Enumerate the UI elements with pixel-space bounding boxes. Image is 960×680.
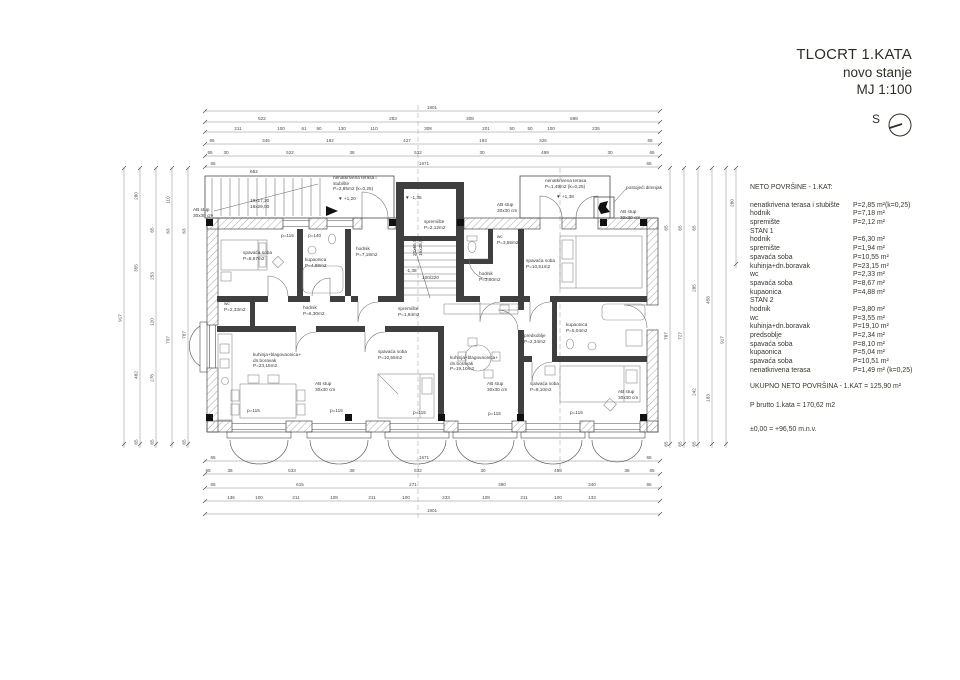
area-row-value: P=1,94 m² [853,245,885,254]
area-row-value: P=8,10 m² [853,341,885,350]
dimension-label: 65 [150,439,155,444]
area-row-label: hodnik [750,210,770,217]
areas-total: UKUPNO NETO POVRŠINA - 1.KAT = 125,90 m² [750,383,945,392]
area-row: spavaća sobaP=8,10 m² [750,341,945,350]
dimension-label: 65 [134,439,139,444]
dimension-label: 280 [134,192,139,200]
area-row: kuhinja+dn.boravakP=23,15 m² [750,263,945,272]
area-row: kuhinja+dn.boravakP=19,10 m² [750,323,945,332]
dimension-label: 787 [182,331,187,339]
dimension-label: 120 [150,318,155,326]
room-label: spremišteP=1,94m2 [398,306,420,317]
drawing-subtitle: novo stanje [796,65,912,80]
dimension-label: 183 [706,394,711,402]
dimension-label: 727 [678,332,683,340]
area-row-label: spremište [750,219,780,226]
area-row: spavaća sobaP=10,55 m² [750,254,945,263]
dimension-label: 522 [258,116,266,121]
area-row-label: spremište [750,245,780,252]
dimension-label: 63 [166,228,171,233]
room-label: spavaća sobaP=10,51m2 [526,258,555,269]
area-row: nenatkrivena terasa i stubišteP=2,85 m²(… [750,202,945,211]
room-label: spremišteP=2,12m2 [424,219,446,230]
dimension-label: 63 [182,228,187,233]
dimension-label: 737 [166,336,171,344]
area-row-label: kuhinja+dn.boravak [750,323,810,330]
area-row: hodnikP=7,18 m² [750,210,945,219]
room-label: hodnikP=7,18m2 [356,246,378,257]
dimension-label: 65 [647,138,652,143]
room-label: spavaća sobaP=8,10m2 [530,381,559,392]
plan-annotation: 20x16,5016x28,00 [412,237,423,256]
dimension-label: 65 [182,439,187,444]
plan-annotation: p=115 [281,233,294,239]
drawing-sheet: spavaća sobaP=8,67m2kupaonicaP=4,88m2hod… [0,0,960,680]
plan-annotation: 652 [250,169,258,175]
dimension-label: 482 [134,371,139,379]
area-row-label: wc [750,271,758,278]
plan-annotation: p=115 [488,411,501,417]
dimension-label: 308 [424,126,432,131]
area-row: predsobljeP=2,34 m² [750,332,945,341]
dimension-label: 50 [316,126,321,131]
dimension-label: 65 [210,455,215,460]
room-label: kuhinja+blagovaonica+dn.boravakP=23,15m2 [253,352,301,369]
room-label: kupaonicaP=4,88m2 [305,257,327,268]
dimension-label: 340 [588,482,596,487]
dimension-label: 38 [624,468,629,473]
dimension-label: 100 [255,495,263,500]
areas-brutto: P brutto 1.kata = 170,62 m2 [750,402,945,411]
dimension-label: 211 [520,495,527,500]
dimension-label: 787 [664,332,669,340]
area-row: STAN 1 [750,228,945,237]
dimension-label: 211 [368,495,375,500]
dimension-label: 65 [205,468,210,473]
dimension-label: 201 [482,126,490,131]
dimension-label: 30 [479,150,484,155]
dimension-label: 1671 [419,161,429,166]
dimension-label: 65 [210,482,215,487]
dimension-label: 1801 [427,508,437,513]
area-row-value: P=2,33 m² [853,271,885,280]
dimension-label: 50 [509,126,514,131]
areas-panel: NETO POVRŠINE - 1.KAT: nenatkrivena tera… [750,184,945,435]
dimension-label: 355 [134,264,139,272]
dimension-label: 61 [301,126,306,131]
area-row-label: kupaonica [750,349,781,356]
dimension-label: 345 [262,138,270,143]
dimension-label: 235 [592,126,600,131]
dimension-label: 108 [330,495,338,500]
dimension-label: 65 [207,150,212,155]
area-row-label: spavaća soba [750,358,793,365]
dimension-label: 533 [288,468,296,473]
area-row-value: P=1,49 m² (k=0,25) [853,367,912,376]
area-row-value: P=2,12 m² [853,219,885,228]
dimension-label: 65 [649,150,654,155]
room-label: hodnikP=6,30m2 [303,305,325,316]
dimension-label: 65 [150,227,155,232]
dimension-label: 50 [527,126,532,131]
plan-annotation: postojeći dimnjak [626,185,662,191]
plan-annotation: p=115 [330,408,343,414]
area-row-value: P=23,15 m² [853,263,889,272]
dimension-label: 100 [277,126,285,131]
dimension-label: 192 [326,138,334,143]
dimension-label: 38 [227,468,232,473]
plan-annotation: ▼ +1,38 [556,194,574,200]
area-row-value: P=19,10 m² [853,323,889,332]
room-label: spavaća sobaP=10,55m2 [378,349,407,360]
north-compass: S [866,103,918,143]
dimension-label: 698 [570,116,578,121]
dimension-label: 108 [482,495,490,500]
area-row-label: spavaća soba [750,341,793,348]
plan-annotation: ▼ -1,38 [400,268,417,274]
room-label: kuhinja+blagovaonica+dn.boravakP=19,10m2 [450,355,498,372]
area-row-label: hodnik [750,236,770,243]
area-row-label: STAN 2 [750,297,774,304]
plan-annotation: nenatkrivena terasa istubišteP=2,85m2 (k… [333,175,377,192]
dimension-label: 499 [541,150,549,155]
dimension-label: 458 [706,296,711,304]
area-row: kupaonicaP=4,88 m² [750,289,945,298]
dimension-label: 65 [646,482,651,487]
dimension-label: 110 [166,196,171,203]
dimension-label: 390 [498,482,506,487]
area-row-label: kuhinja+dn.boravak [750,263,810,270]
dimension-label: 65 [649,468,654,473]
dimension-label: 136 [227,495,235,500]
room-label: predsobljeP=2,34m2 [524,333,546,344]
room-label: wcP=2,33m2 [224,301,246,312]
dimension-label: 917 [720,336,725,344]
dimension-label: 65 [646,161,651,166]
plan-annotation: ▼ -1,35 [405,195,422,201]
dimension-label: 278 [150,374,155,382]
dimension-label: 65 [646,455,651,460]
dimension-label: 271 [409,482,417,487]
dimension-label: 280 [730,199,735,207]
room-label: wcP=3,55m2 [497,234,519,245]
area-row: spremišteP=2,12 m² [750,219,945,228]
area-row-value: P=8,67 m² [853,280,885,289]
dimension-label: 211 [234,126,241,131]
dimension-label: 65 [210,161,215,166]
areas-rows: nenatkrivena terasa i stubišteP=2,85 m²(… [750,202,945,376]
dimension-label: 100 [547,126,555,131]
area-row-label: predsoblje [750,332,782,339]
dimension-label: 65 [209,138,214,143]
areas-heading: NETO POVRŠINE - 1.KAT: [750,184,945,193]
datum-level: ±0,00 = +96,50 m.n.v. [750,426,945,435]
dimension-label: 65 [692,225,697,230]
dimension-label: 65 [664,225,669,230]
plan-annotation: AB stup30x30 cm [497,202,517,213]
area-row: nenatkrivena terasaP=1,49 m² (k=0,25) [750,367,945,376]
dimension-label: 110 [370,126,377,131]
dimension-label: 38 [349,150,354,155]
dimension-label: 1801 [427,105,437,110]
dimension-label: 38 [349,468,354,473]
dimension-label: 283 [389,116,397,121]
area-row-value: P=4,88 m² [853,289,885,298]
area-row-label: hodnik [750,306,770,313]
dimension-label: 242 [692,388,697,396]
area-row-label: wc [750,315,758,322]
dimension-label: 65 [678,441,683,446]
dimension-label: 498 [554,468,562,473]
area-row-label: spavaća soba [750,254,793,261]
dimension-label: 211 [292,495,299,500]
dimension-label: 183 [479,138,487,143]
area-row-value: P=10,55 m² [853,254,889,263]
drawing-title: TLOCRT 1.KATA [796,46,912,63]
area-row: hodnikP=3,80 m² [750,306,945,315]
dimension-label: 615 [296,482,304,487]
area-row-value: P=3,80 m² [853,306,885,315]
plan-annotation: 19x17,2018x29,00 [250,198,269,209]
dimension-label: 30 [607,150,612,155]
area-row-label: nenatkrivena terasa i stubište [750,202,840,209]
dimension-label: 100 [554,495,562,500]
plan-annotation: p=140 [308,233,321,239]
plan-annotation: AB stup30x30 cm [193,207,213,218]
dimension-label: 1671 [419,455,429,460]
area-row-label: nenatkrivena terasa [750,367,811,374]
dimension-label: 532 [414,468,422,473]
area-row-label: STAN 1 [750,228,774,235]
area-row-value: P=10,51 m² [853,358,889,367]
area-row: spavaća sobaP=10,51 m² [750,358,945,367]
dimension-label: 233 [442,495,450,500]
area-row: STAN 2 [750,297,945,306]
dimension-label: 30 [223,150,228,155]
area-row: spavaća sobaP=8,67 m² [750,280,945,289]
dimension-label: 253 [150,272,155,280]
dimension-label: 522 [286,150,294,155]
dimension-label: 65 [678,225,683,230]
room-label: hodnikP=3,80m2 [479,271,501,282]
area-row: hodnikP=6,30 m² [750,236,945,245]
dimension-label: 100 [402,495,410,500]
plan-annotation: AB stup30x30 cm [620,209,640,220]
plan-annotation: AB stup30x30 cm [618,389,638,400]
dimension-label: 532 [414,150,422,155]
area-row-label: kupaonica [750,289,781,296]
plan-annotation: AB stup30x30 cm [315,381,335,392]
plan-annotation: ▼ +1,20 [338,196,356,202]
area-row: wcP=2,33 m² [750,271,945,280]
plan-annotation: nenatkrivena terasaP=1,49m2 (k=0,25) [545,178,586,189]
area-row: spremišteP=1,94 m² [750,245,945,254]
room-label: kupaonicaP=5,04m2 [566,322,588,333]
area-row-value: P=3,55 m² [853,315,885,324]
area-row-value: P=2,85 m²(k=0,25) [853,202,910,211]
dimension-label: 308 [466,116,474,121]
dimension-label: 326 [539,138,547,143]
plan-annotation: p=115 [570,410,583,416]
dimension-label: 65 [664,441,669,446]
dimension-label: 285 [692,284,697,292]
dimension-label: 427 [403,138,411,143]
drawing-scale: MJ 1:100 [796,82,912,97]
dimension-label: 65 [692,441,697,446]
compass-label: S [872,112,880,126]
title-block: TLOCRT 1.KATA novo stanje MJ 1:100 [796,46,912,97]
area-row-value: P=2,34 m² [853,332,885,341]
dimension-label: 917 [118,314,123,322]
room-label: spavaća sobaP=8,67m2 [243,250,272,261]
area-row: kupaonicaP=5,04 m² [750,349,945,358]
plan-annotation: AB stup30x30 cm [487,381,507,392]
area-row-value: P=5,04 m² [853,349,885,358]
dimension-label: 130 [338,126,346,131]
plan-annotation: p=115 [247,408,260,414]
area-row-label: spavaća soba [750,280,793,287]
plan-annotation: 100/220 [422,275,439,281]
dimension-label: 30 [480,468,485,473]
area-row-value: P=6,30 m² [853,236,885,245]
area-row-value: P=7,18 m² [853,210,885,219]
dimension-label: 133 [588,495,596,500]
plan-annotation: p=115 [413,410,426,416]
area-row: wcP=3,55 m² [750,315,945,324]
